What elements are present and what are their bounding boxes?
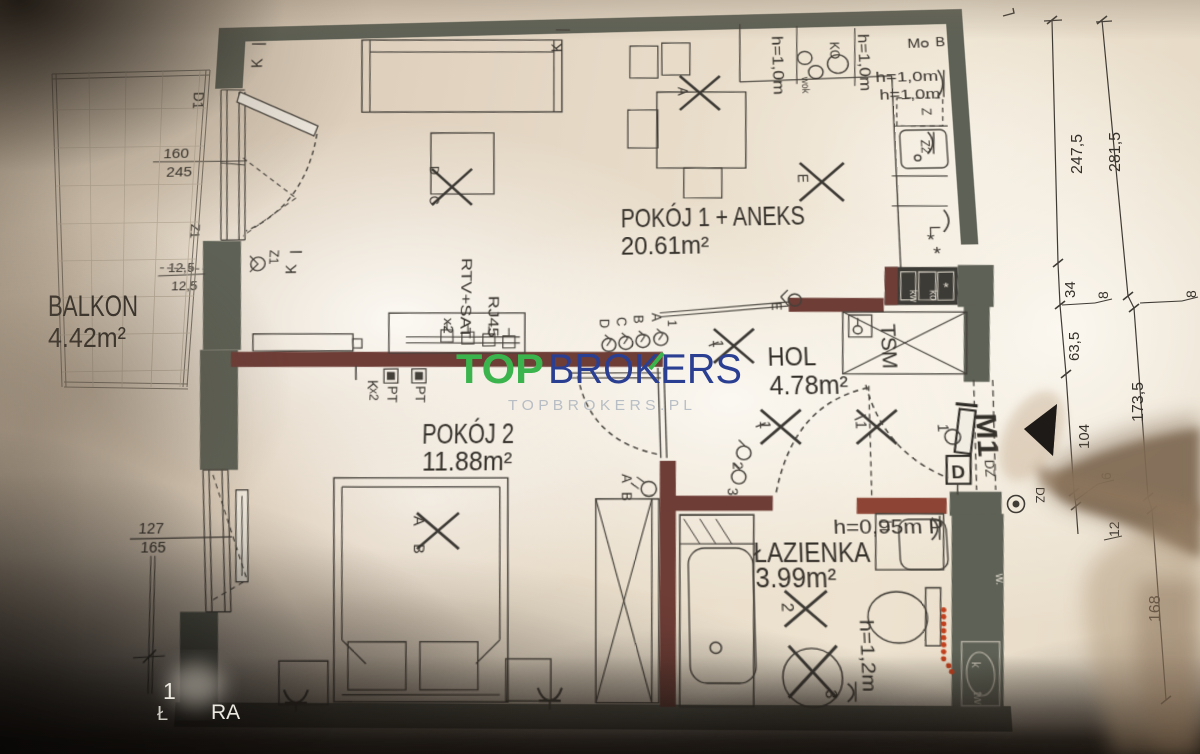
- svg-text:20.61m²: 20.61m²: [621, 232, 710, 261]
- svg-text:*: *: [927, 231, 936, 251]
- svg-text:TSM: TSM: [876, 324, 902, 369]
- svg-text:A: A: [618, 474, 635, 483]
- svg-text:TOP: TOP: [456, 345, 544, 392]
- svg-text:wok: wok: [800, 76, 812, 94]
- svg-text:KO: KO: [826, 42, 843, 60]
- svg-text:M1: M1: [968, 413, 1003, 458]
- svg-text:T O P B R O K E R S . P L: T O P B R O K E R S . P L: [508, 397, 692, 414]
- svg-text:3: 3: [822, 690, 841, 699]
- svg-text:B: B: [618, 492, 635, 501]
- svg-text:E: E: [794, 174, 812, 183]
- svg-text:E: E: [768, 302, 785, 311]
- svg-text:3.99m²: 3.99m²: [755, 562, 838, 593]
- svg-text:ŁAZIENKA: ŁAZIENKA: [753, 538, 871, 569]
- svg-text:2: 2: [729, 462, 746, 470]
- svg-text:168: 168: [1147, 595, 1164, 622]
- svg-text:h=1,0m: h=1,0m: [854, 34, 874, 92]
- svg-text:L: L: [926, 226, 944, 234]
- svg-text:POKÓJ 2: POKÓJ 2: [422, 419, 514, 450]
- svg-text:12,5: 12,5: [171, 278, 199, 293]
- svg-text:173,5: 173,5: [1130, 382, 1147, 422]
- svg-text:8: 8: [1095, 291, 1111, 299]
- svg-text:C: C: [426, 196, 442, 206]
- svg-text:h=0,95m P: h=0,95m P: [833, 514, 945, 538]
- svg-text:1: 1: [852, 421, 871, 429]
- svg-text:K: K: [249, 58, 267, 68]
- svg-text:A: A: [648, 313, 664, 322]
- svg-text:Z1: Z1: [266, 250, 282, 265]
- svg-text:C: C: [613, 317, 629, 327]
- svg-text:3: 3: [724, 488, 741, 496]
- svg-text:247,5: 247,5: [1069, 134, 1086, 174]
- svg-text:165: 165: [140, 539, 167, 556]
- svg-text:DZ: DZ: [1033, 487, 1047, 503]
- svg-text:127: 127: [138, 520, 165, 537]
- svg-text:h=1,0m: h=1,0m: [875, 68, 939, 85]
- svg-text:ko: ko: [927, 290, 940, 301]
- svg-text:RJ45: RJ45: [485, 296, 503, 338]
- svg-text:k: k: [968, 662, 982, 670]
- svg-text:4.78m²: 4.78m²: [769, 372, 849, 402]
- svg-text:x2: x2: [440, 318, 456, 334]
- svg-text:kw: kw: [907, 290, 920, 303]
- svg-text:DZ: DZ: [981, 460, 997, 478]
- svg-text:8: 8: [1183, 290, 1199, 298]
- svg-text:D: D: [951, 463, 966, 483]
- svg-text:104: 104: [1076, 424, 1093, 449]
- svg-text:D: D: [426, 166, 442, 175]
- svg-text:1: 1: [709, 340, 727, 348]
- svg-text:h=1,0m: h=1,0m: [768, 36, 787, 95]
- svg-text:63,5: 63,5: [1066, 332, 1083, 361]
- svg-text:tw: tw: [970, 692, 985, 706]
- svg-text:4.42m²: 4.42m²: [48, 322, 126, 353]
- svg-text:160: 160: [163, 145, 190, 161]
- svg-text:h=1,0m: h=1,0m: [879, 86, 941, 103]
- svg-text:RTV+SAT: RTV+SAT: [457, 258, 476, 339]
- svg-text:BROKERS: BROKERS: [548, 345, 742, 392]
- svg-text:2: 2: [778, 603, 797, 612]
- svg-text:6: 6: [1098, 472, 1114, 480]
- svg-text:Ł: Ł: [157, 703, 168, 725]
- svg-text:A: A: [675, 87, 692, 97]
- svg-text:*: *: [933, 245, 943, 265]
- svg-text:K: K: [549, 43, 566, 52]
- svg-text:M: M: [907, 36, 921, 51]
- svg-text:POKÓJ 1 + ANEKS: POKÓJ 1 + ANEKS: [621, 200, 806, 234]
- svg-text:12: 12: [1106, 521, 1122, 537]
- svg-text:h=1,2m: h=1,2m: [855, 620, 880, 692]
- svg-text:1: 1: [934, 424, 953, 432]
- svg-text:B: B: [935, 34, 946, 49]
- svg-text:A: A: [410, 516, 428, 527]
- svg-text:PT: PT: [412, 386, 429, 403]
- svg-text:12,5: 12,5: [168, 260, 196, 275]
- svg-text:D: D: [596, 319, 612, 329]
- svg-text:x2: x2: [366, 388, 380, 401]
- svg-text:K: K: [364, 380, 382, 390]
- svg-text:34: 34: [1062, 281, 1079, 298]
- svg-text:B: B: [630, 315, 646, 324]
- svg-text:Z1: Z1: [187, 224, 203, 239]
- svg-text:HOL: HOL: [767, 343, 817, 373]
- svg-text:1: 1: [664, 320, 678, 327]
- svg-text:K: K: [282, 264, 299, 274]
- svg-text:B: B: [410, 544, 428, 554]
- svg-text:PT: PT: [384, 386, 401, 403]
- svg-text:BALKON: BALKON: [48, 290, 138, 323]
- svg-text:1: 1: [756, 421, 774, 429]
- svg-text:Z2: Z2: [917, 140, 932, 154]
- svg-text:*: *: [943, 280, 950, 295]
- svg-text:281,5: 281,5: [1107, 132, 1124, 172]
- svg-text:D1: D1: [190, 92, 207, 110]
- svg-text:1: 1: [163, 678, 176, 704]
- svg-text:Z: Z: [918, 108, 935, 116]
- svg-text:RA: RA: [211, 701, 240, 724]
- svg-text:w.: w.: [992, 573, 1007, 586]
- svg-text:11.88m²: 11.88m²: [422, 448, 513, 478]
- svg-text:245: 245: [166, 164, 193, 180]
